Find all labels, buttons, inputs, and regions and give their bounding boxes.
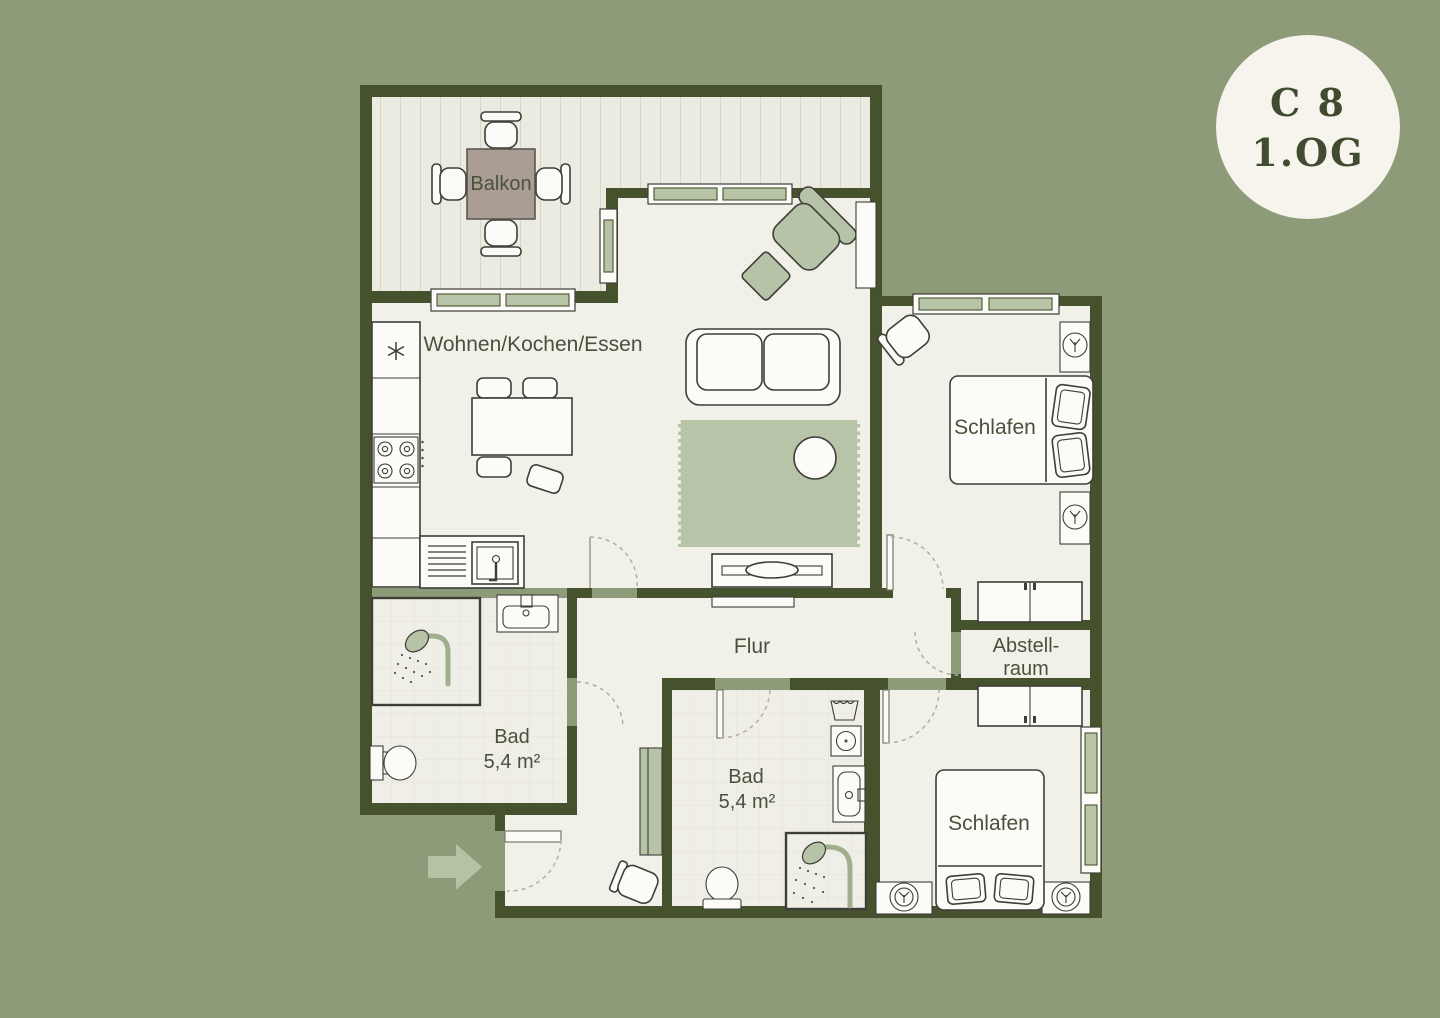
wardrobe	[978, 686, 1082, 726]
shower-enclosure	[372, 598, 480, 705]
floor-plan-canvas: Balkon	[0, 0, 1440, 1018]
nightstand	[1060, 322, 1090, 372]
rug	[678, 420, 860, 547]
entry-cabinet	[640, 748, 662, 855]
entrance-arrow-icon	[428, 844, 482, 890]
sideboard	[856, 202, 876, 288]
window-bedroom-top	[913, 294, 1059, 314]
nightstand	[1042, 882, 1090, 914]
tv-lowboard	[712, 554, 832, 587]
pillow	[1052, 432, 1091, 478]
window-balcony-door	[600, 209, 617, 283]
washbasin-icon	[497, 595, 558, 632]
bathroom-bottom-area: 5,4 m²	[719, 791, 776, 813]
balcony-chair	[432, 164, 466, 204]
storage-label-line1: Abstell-	[993, 635, 1060, 657]
kitchen-sink-icon	[420, 536, 524, 588]
hallway-label: Flur	[734, 635, 770, 658]
pillow	[946, 873, 986, 904]
nightstand	[1060, 492, 1090, 544]
living-label: Wohnen/Kochen/Essen	[423, 333, 642, 356]
badge-circle	[1216, 35, 1400, 219]
dining-chair	[523, 378, 557, 398]
window-living-top	[648, 184, 792, 204]
bed	[936, 770, 1044, 910]
washbasin-icon	[833, 766, 865, 822]
balcony-chair	[481, 112, 521, 148]
bedroom-bottom-label: Schlafen	[948, 812, 1030, 835]
unit-badge: C 8 1.OG	[1216, 35, 1400, 219]
floor-plan-page: Balkon	[0, 0, 1440, 1018]
storage-label-line2: raum	[1003, 658, 1049, 680]
badge-floor-level: 1.OG	[1251, 130, 1364, 175]
toilet-icon	[370, 746, 416, 780]
window-bedroom-bottom-right	[1081, 727, 1101, 873]
wardrobe	[978, 582, 1082, 622]
sofa	[686, 329, 840, 405]
pillow	[994, 873, 1034, 904]
bedroom-top-label: Schlafen	[954, 416, 1036, 439]
hallway-shelf	[712, 597, 794, 607]
bathroom-left-area: 5,4 m²	[484, 751, 541, 773]
bathroom-bottom-label: Bad	[728, 766, 764, 788]
pillow	[1051, 384, 1091, 430]
badge-unit-number: C 8	[1270, 80, 1346, 125]
dining-chair	[477, 457, 511, 477]
nightstand	[876, 882, 932, 914]
dining-chair	[477, 378, 511, 398]
balcony-chair	[481, 220, 521, 256]
washing-machine-icon	[831, 726, 861, 756]
dining-table	[472, 398, 572, 455]
shower-enclosure	[786, 833, 866, 909]
window-balcony-bottom	[431, 289, 575, 311]
bathroom-left-label: Bad	[494, 726, 530, 748]
balcony-chair	[536, 164, 570, 204]
cooktop-icon	[374, 437, 424, 483]
side-table	[794, 437, 836, 479]
balcony-label: Balkon	[470, 173, 531, 195]
